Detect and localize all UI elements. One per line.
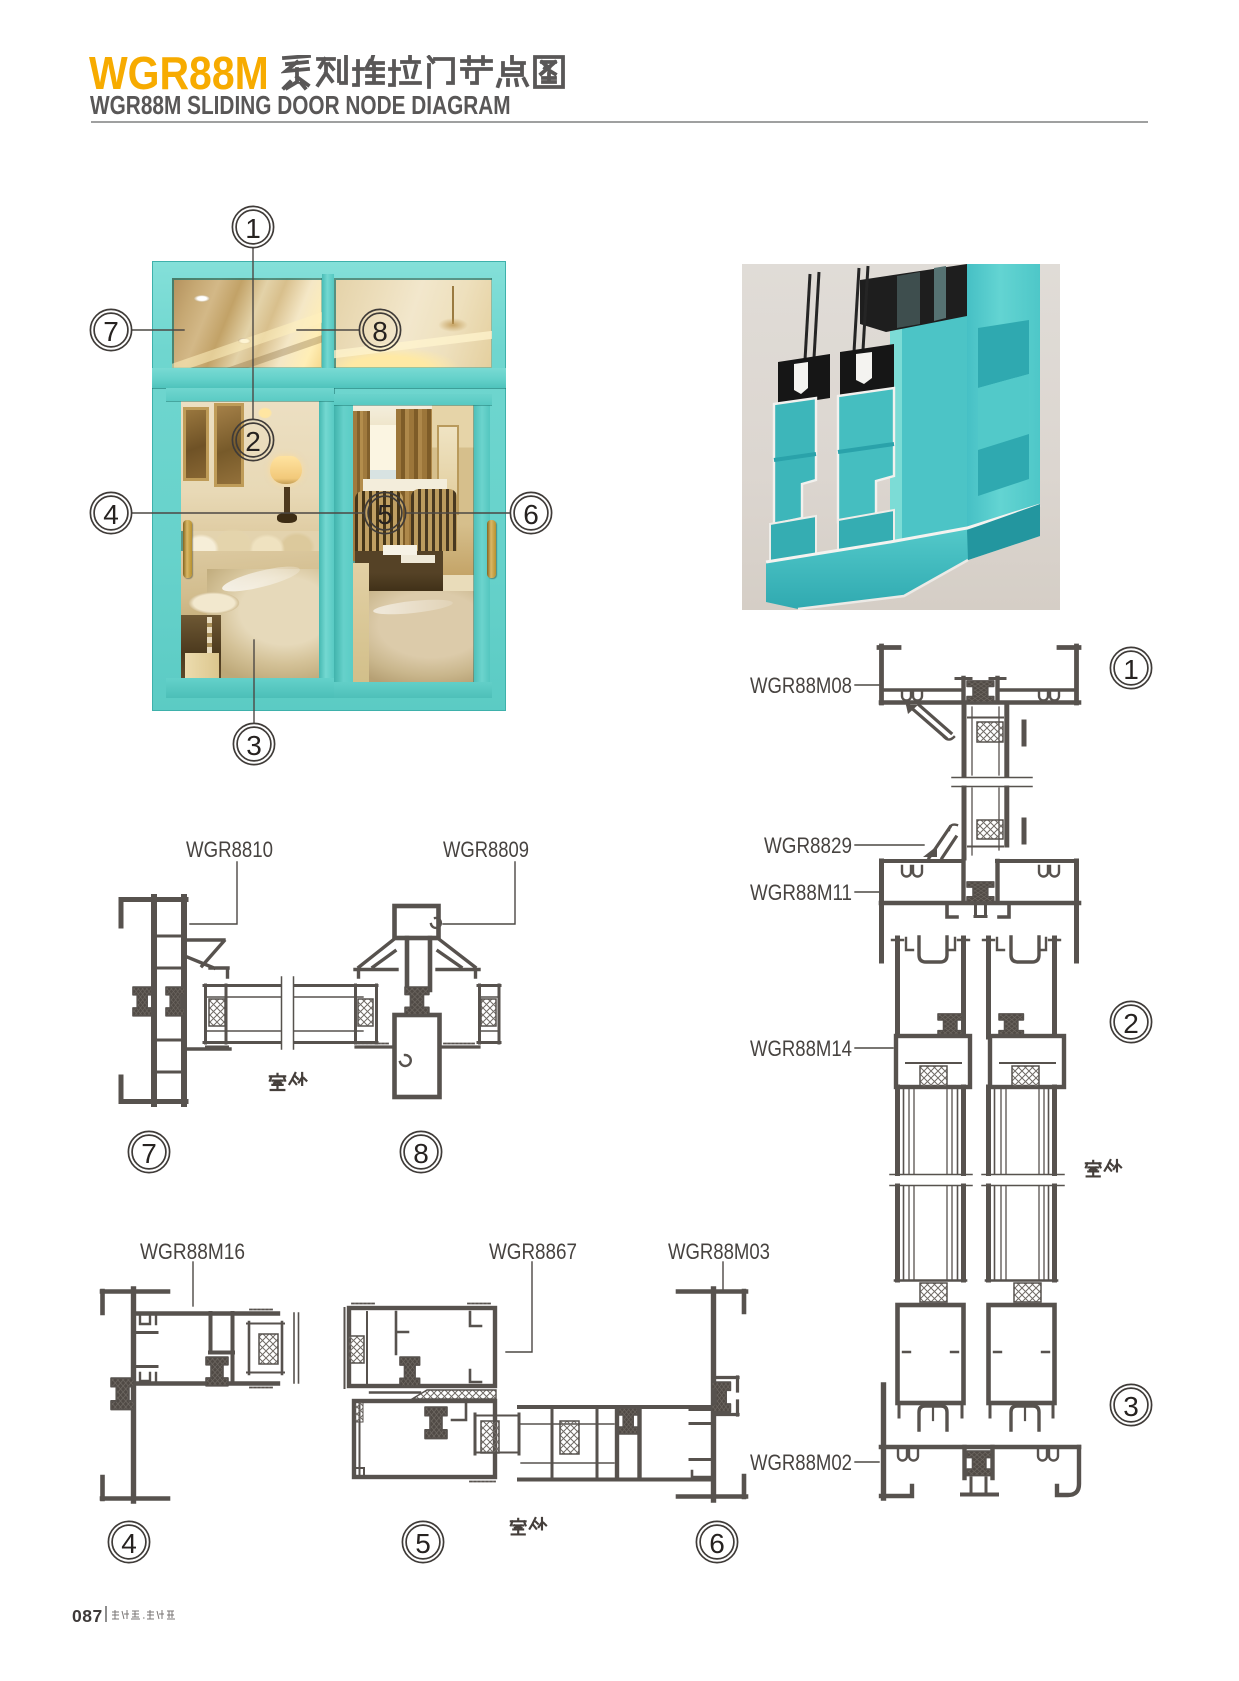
svg-text:WGR88M02: WGR88M02 [750,1450,852,1475]
svg-text:1: 1 [1123,654,1139,685]
svg-text:7: 7 [103,316,119,347]
svg-text:5: 5 [415,1528,431,1559]
svg-text:2: 2 [245,426,261,457]
svg-text:WGR8809: WGR8809 [443,837,529,862]
svg-text:WGR88M03: WGR88M03 [668,1239,770,1264]
svg-text:3: 3 [246,730,262,761]
svg-text:7: 7 [141,1138,157,1169]
svg-text:WGR88M11: WGR88M11 [750,880,852,905]
svg-text:WGR8810: WGR8810 [186,837,273,862]
svg-text:8: 8 [413,1138,429,1169]
svg-text:4: 4 [103,499,119,530]
svg-text:1: 1 [245,213,261,244]
svg-text:2: 2 [1123,1008,1139,1039]
svg-text:3: 3 [1123,1391,1139,1422]
svg-text:WGR8867: WGR8867 [489,1239,577,1264]
svg-text:WGR88M14: WGR88M14 [750,1036,852,1061]
svg-text:6: 6 [523,499,539,530]
svg-text:WGR88M08: WGR88M08 [750,673,852,698]
svg-text:WGR8829: WGR8829 [764,833,852,858]
svg-text:5: 5 [377,499,393,530]
svg-text:WGR88M16: WGR88M16 [140,1239,245,1264]
svg-text:6: 6 [709,1528,725,1559]
svg-text:8: 8 [372,316,388,347]
svg-text:4: 4 [121,1528,137,1559]
